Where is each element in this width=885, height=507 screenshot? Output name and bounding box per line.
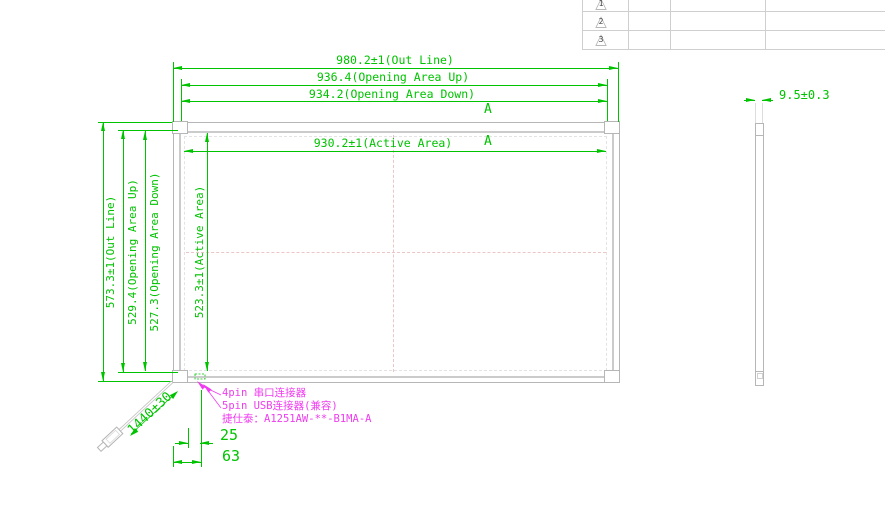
arrow-downleft-icon (128, 428, 138, 438)
connector-footprint (195, 374, 205, 379)
diagonal-graphics-layer (0, 0, 885, 507)
cable-core-line (119, 382, 172, 431)
usb-connector (96, 427, 123, 453)
connector-pointer-icon (195, 379, 205, 389)
cad-drawing-canvas: △ 1 △ 2 △ 3 980.2±1(Out Line) 936.4(Open… (0, 0, 885, 507)
